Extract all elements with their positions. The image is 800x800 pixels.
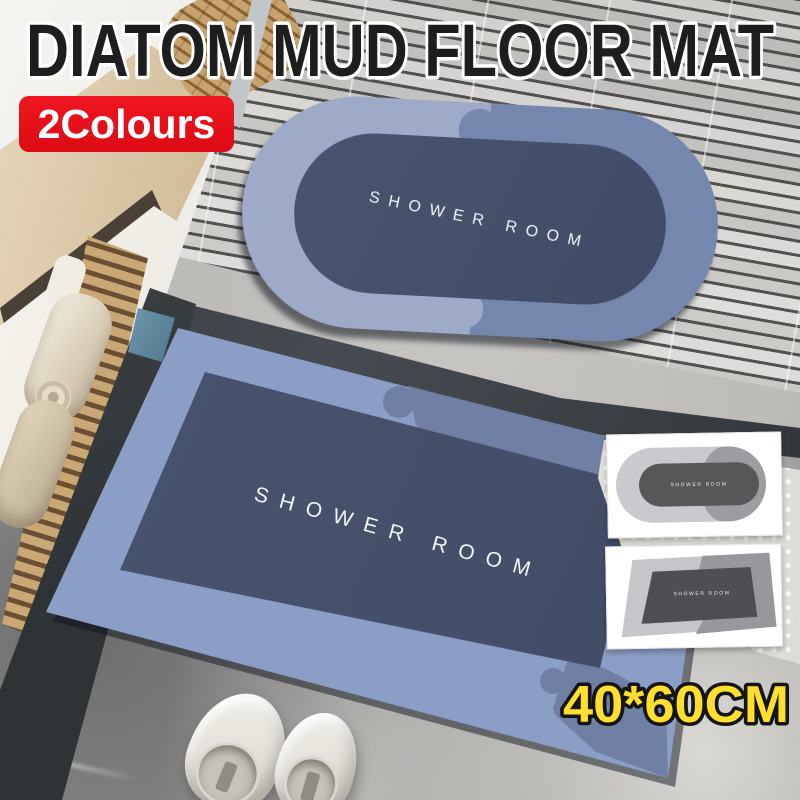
grey-rect-mat-label: SHOWER ROOM	[673, 590, 730, 597]
product-title: DIATOM MUD FLOOR MAT	[26, 9, 774, 92]
oval-mat-center: SHOWER ROOM	[290, 129, 670, 308]
oval-mat-label: SHOWER ROOM	[368, 189, 592, 253]
colours-badge: 2Colours	[19, 96, 234, 152]
slipper-insole-tag	[215, 760, 238, 793]
product-promo-image: SHOWER ROOM SHOWER ROOM SHOWER ROOM	[0, 0, 800, 800]
grey-oval-mat-label: SHOWER ROOM	[670, 481, 727, 488]
grey-rect-mat: SHOWER ROOM	[606, 544, 782, 648]
slipper-opening	[277, 750, 345, 800]
slipper-insole-tag	[300, 770, 321, 800]
oval-mat: SHOWER ROOM	[236, 91, 723, 348]
slipper-right	[265, 703, 369, 800]
grey-oval-mat-border: SHOWER ROOM	[615, 446, 766, 524]
size-banner: 40*60CM	[540, 660, 800, 740]
thumbnail-card-oval: SHOWER ROOM	[606, 431, 783, 538]
thumbnail-card-rect: SHOWER ROOM	[605, 543, 783, 649]
product-title-banner: DIATOM MUD FLOOR MAT	[0, 0, 800, 100]
slipper-opening	[186, 733, 269, 800]
size-label: 40*60CM	[563, 676, 789, 734]
rect-mat-patch-curve	[383, 386, 415, 418]
grey-oval-mat-center: SHOWER ROOM	[639, 462, 760, 507]
colours-badge-label: 2Colours	[38, 101, 216, 148]
